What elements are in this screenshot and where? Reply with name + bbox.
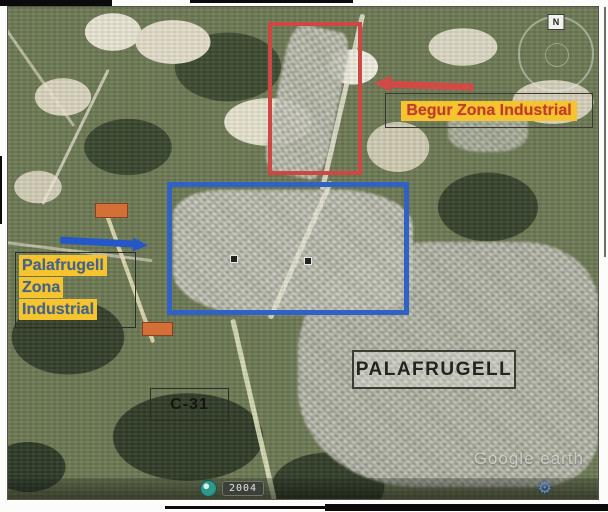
status-bar: 2004 ⚙ bbox=[8, 478, 598, 499]
road-c31-label-box: C-31 bbox=[150, 388, 229, 421]
road-marker bbox=[95, 203, 128, 218]
begur-zone-outline bbox=[268, 22, 362, 175]
palafrugell-zone-label-line2: Zona bbox=[19, 277, 63, 298]
road-junction-dot bbox=[230, 255, 238, 263]
scan-mark bbox=[604, 7, 606, 257]
scan-mark bbox=[0, 156, 2, 224]
palafrugell-zone-label: Palafrugell Zona Industrial bbox=[15, 252, 136, 328]
palafrugell-zone-outline bbox=[167, 182, 409, 315]
scanned-page: N Begur Zona Industrial Palafrugell Zona… bbox=[0, 0, 608, 512]
road-marker bbox=[142, 322, 173, 336]
arrow-head bbox=[374, 75, 392, 92]
city-label-box: PALAFRUGELL bbox=[352, 350, 516, 389]
begur-zone-label-text: Begur Zona Industrial bbox=[401, 101, 576, 121]
begur-zone-label: Begur Zona Industrial bbox=[385, 93, 593, 128]
scan-mark bbox=[0, 0, 112, 6]
scan-mark bbox=[325, 504, 608, 511]
imagery-year-badge: 2004 bbox=[222, 481, 264, 496]
road-c31-label-text: C-31 bbox=[170, 396, 209, 414]
compass-inner-ring bbox=[545, 43, 569, 67]
google-earth-watermark: Google earth bbox=[474, 449, 584, 469]
globe-icon bbox=[200, 480, 217, 497]
scan-mark bbox=[190, 0, 353, 3]
compass-icon: N bbox=[518, 16, 594, 92]
scan-mark bbox=[165, 506, 327, 509]
city-label-text: PALAFRUGELL bbox=[356, 359, 513, 381]
gear-icon: ⚙ bbox=[538, 478, 552, 499]
palafrugell-zone-label-line3: Industrial bbox=[19, 299, 97, 320]
arrow-shaft bbox=[391, 80, 474, 90]
palafrugell-zone-label-line1: Palafrugell bbox=[19, 255, 107, 276]
satellite-map: N Begur Zona Industrial Palafrugell Zona… bbox=[7, 6, 599, 500]
arrow-head bbox=[133, 237, 149, 252]
compass-north-label: N bbox=[548, 14, 565, 30]
arrow-shaft bbox=[60, 237, 133, 248]
road-junction-dot bbox=[304, 257, 312, 265]
